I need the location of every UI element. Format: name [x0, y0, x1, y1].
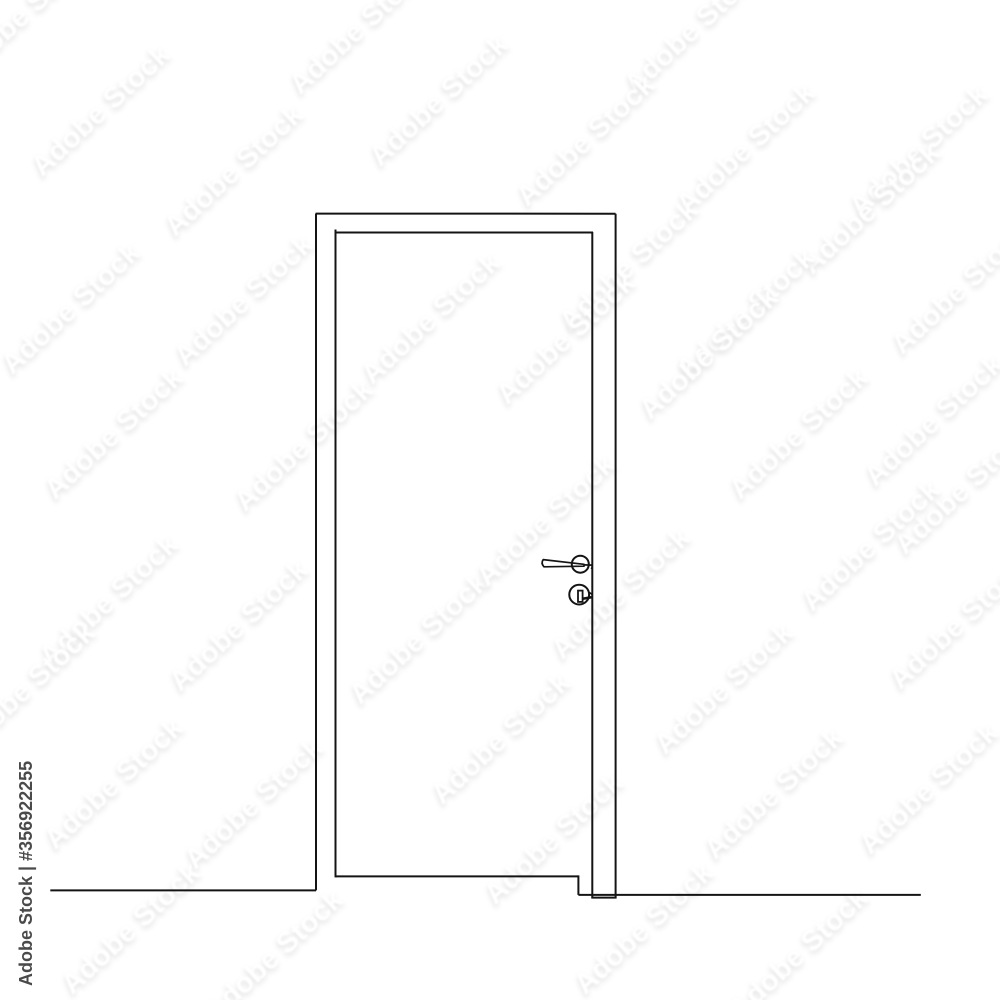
svg-text:Adobe Stock | #356922255: Adobe Stock | #356922255: [16, 761, 36, 986]
